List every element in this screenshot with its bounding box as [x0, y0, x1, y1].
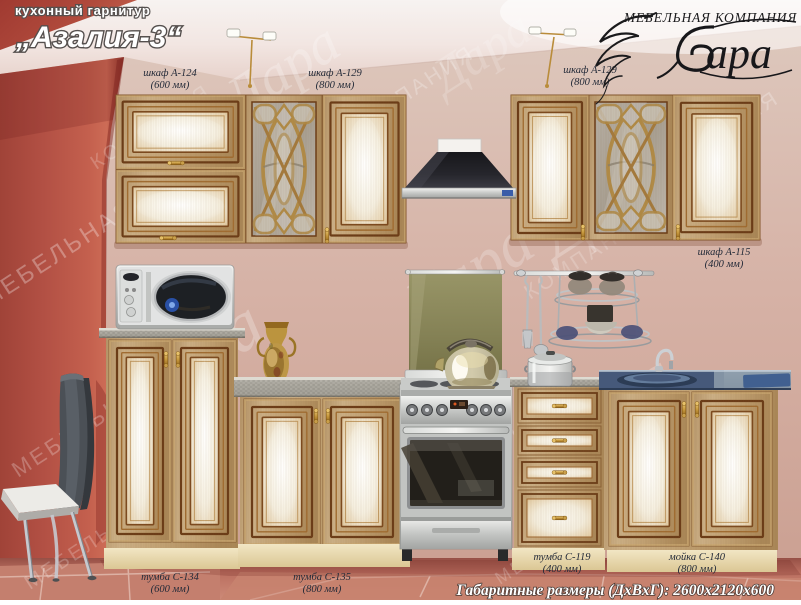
svg-text:тумба С-134: тумба С-134	[141, 572, 200, 583]
svg-text:(600 мм): (600 мм)	[151, 584, 190, 595]
svg-text:шкаф А-129: шкаф А-129	[563, 65, 617, 76]
svg-text:(600 мм): (600 мм)	[151, 80, 190, 91]
svg-text:кухонный гарнитур: кухонный гарнитур	[15, 3, 150, 18]
svg-text:(400 мм): (400 мм)	[543, 564, 582, 575]
svg-text:(800 мм): (800 мм)	[303, 584, 342, 595]
svg-text:шкаф А-115: шкаф А-115	[698, 247, 751, 258]
svg-text:МЕБЕЛЬНАЯ КОМПАНИЯ: МЕБЕЛЬНАЯ КОМПАНИЯ	[623, 10, 797, 25]
svg-text:Габаритные размеры (ДхВхГ): 26: Габаритные размеры (ДхВхГ): 2600х2120х60…	[456, 582, 775, 599]
svg-text:шкаф А-129: шкаф А-129	[308, 68, 362, 79]
svg-text:(800 мм): (800 мм)	[678, 564, 717, 575]
svg-text:ара: ара	[706, 29, 772, 78]
svg-text:(800 мм): (800 мм)	[316, 80, 355, 91]
svg-text:(400 мм): (400 мм)	[705, 259, 744, 270]
svg-text:мойка С-140: мойка С-140	[668, 552, 726, 563]
svg-text:тумба С-119: тумба С-119	[533, 552, 591, 563]
svg-text:шкаф А-124: шкаф А-124	[143, 68, 197, 79]
svg-text:тумба С-135: тумба С-135	[293, 572, 351, 583]
svg-text:„Азалия-3“: „Азалия-3“	[15, 21, 181, 54]
